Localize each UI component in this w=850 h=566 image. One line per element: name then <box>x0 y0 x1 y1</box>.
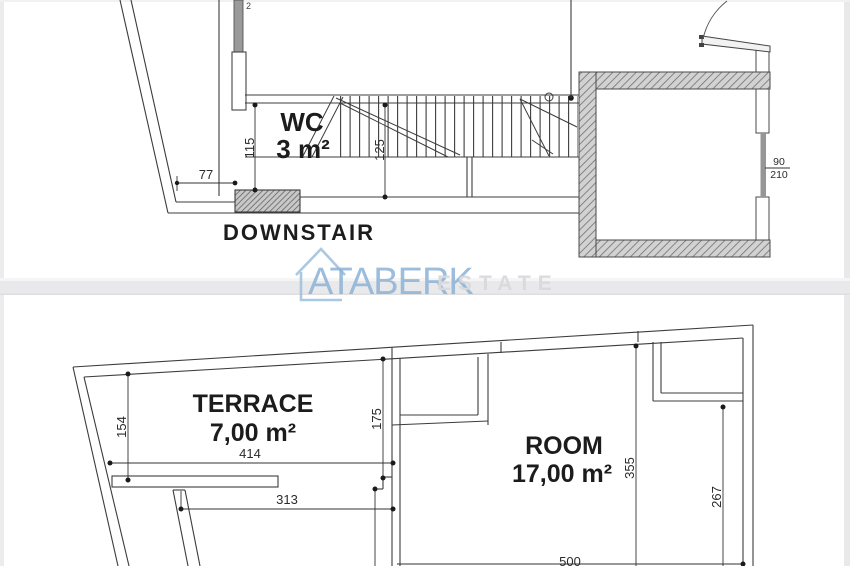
top-edge-strip <box>0 0 850 2</box>
dim-500-label: 500 <box>559 554 581 566</box>
floorplan-canvas: WC 3 m² DOWNSTAIR 115 125 77 90 210 2 AT… <box>0 0 850 566</box>
dim-115-label: 115 <box>242 138 257 159</box>
dim-154-label: 154 <box>114 416 129 438</box>
door-jamb-upper <box>756 89 769 133</box>
dim-355-label: 355 <box>622 457 637 479</box>
downstair-caption: DOWNSTAIR <box>223 220 375 245</box>
terrace-area-label: 7,00 m² <box>210 419 296 447</box>
door-jamb-lower <box>756 197 769 240</box>
dim-77-label: 77 <box>199 167 213 182</box>
wc-area-label: 3 m² <box>276 134 330 164</box>
terrace-label: TERRACE <box>193 390 314 418</box>
door-height-label: 210 <box>770 169 788 181</box>
floorplan-image: WC 3 m² DOWNSTAIR 115 125 77 90 210 2 AT… <box>0 0 850 566</box>
wc-label: WC <box>280 107 324 137</box>
room-label: ROOM <box>525 432 603 460</box>
dim-267-label: 267 <box>709 486 724 508</box>
cropped-edge-note: 2 <box>246 1 251 11</box>
door-width-label: 90 <box>773 156 785 168</box>
dim-414-label: 414 <box>239 446 261 461</box>
dim-313-label: 313 <box>276 492 298 507</box>
door-opening-bar <box>761 133 767 197</box>
watermark-suffix: ESTATE <box>437 272 559 295</box>
dim-175-label: 175 <box>369 408 384 430</box>
hatched-wall-stub <box>235 190 300 212</box>
dim-125-label: 125 <box>372 139 387 161</box>
room-area-label: 17,00 m² <box>512 460 612 488</box>
door-hinge-mark <box>699 43 704 47</box>
